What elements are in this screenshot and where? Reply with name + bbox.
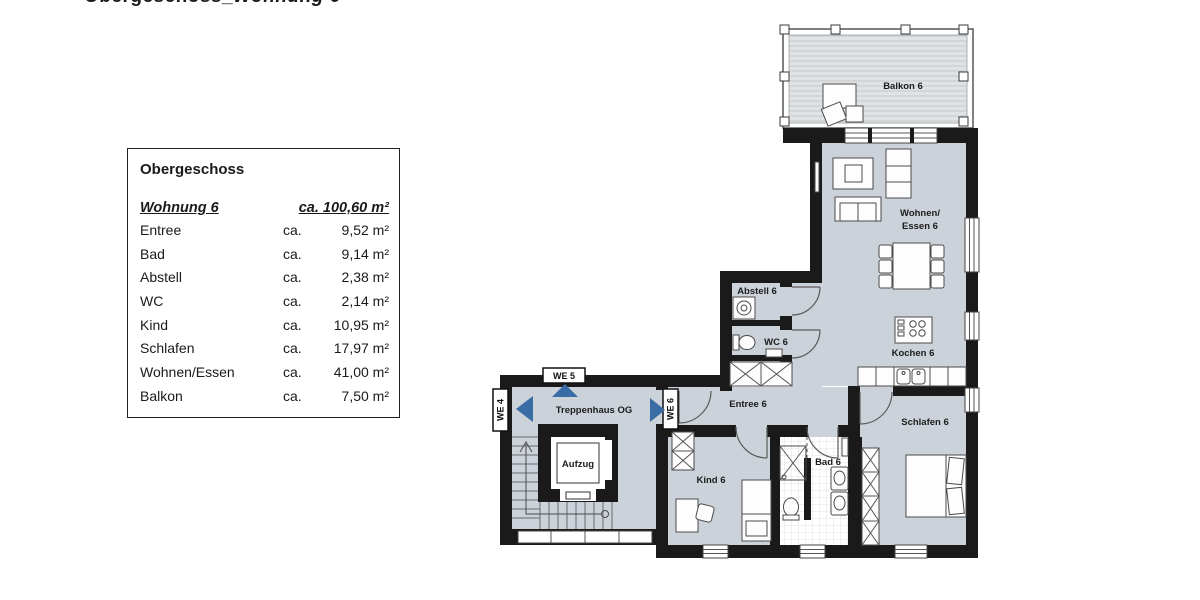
room-label-wc: WC 6 <box>764 337 788 348</box>
window <box>965 312 979 340</box>
desk-chair <box>695 503 714 522</box>
room-label-kind: Kind 6 <box>696 475 725 486</box>
shelf <box>886 149 911 198</box>
room-label-bad: Bad 6 <box>815 457 841 468</box>
window <box>703 545 728 558</box>
pillow <box>746 521 767 536</box>
room-label-essen: Essen 6 <box>902 221 938 232</box>
room-label-entree: Entree 6 <box>729 399 767 410</box>
wardrobe <box>672 432 694 470</box>
pillow <box>947 457 965 484</box>
wardrobe <box>862 448 879 545</box>
room-label-treppenhaus: Treppenhaus OG <box>556 405 633 416</box>
toilet-tank <box>783 515 799 520</box>
dining-table-set <box>879 243 944 289</box>
room-label-wohnen: Wohnen/ <box>900 208 940 219</box>
chair <box>931 245 944 258</box>
window-balcony-door <box>845 128 937 143</box>
wc-sink <box>766 349 782 357</box>
window <box>895 545 927 558</box>
chair <box>879 275 892 288</box>
toilet <box>784 498 799 516</box>
chair <box>931 260 944 273</box>
chair <box>931 275 944 288</box>
chair <box>879 245 892 258</box>
chair <box>879 260 892 273</box>
washing-machine <box>733 297 755 319</box>
we6-tag: WE 6 <box>666 398 676 420</box>
dining-table <box>893 243 930 289</box>
room-label-aufzug: Aufzug <box>562 459 594 470</box>
tv-sideboard <box>833 158 873 189</box>
hall-closet <box>730 362 792 386</box>
floor-plan-page: Obergeschoss_Wohnung 6 Obergeschoss Wohn… <box>0 0 1200 600</box>
balcony: Balkon 6 <box>780 25 973 128</box>
room-label-balkon: Balkon 6 <box>883 81 923 92</box>
window <box>965 388 979 412</box>
room-label-schlafen: Schlafen 6 <box>901 417 949 428</box>
room-label-abstell: Abstell 6 <box>737 286 777 297</box>
we5-tag: WE 5 <box>553 371 575 381</box>
radiator <box>842 438 848 456</box>
radiator <box>815 162 819 192</box>
window <box>800 545 825 558</box>
toilet-tank <box>733 335 739 350</box>
desk <box>676 499 698 532</box>
balcony-chair <box>846 106 863 122</box>
elevator: Aufzug <box>538 424 618 502</box>
floor-plan-drawing: Balkon 6 <box>0 0 1200 600</box>
pillow <box>947 487 965 514</box>
window <box>965 218 979 272</box>
shower-partition <box>804 458 811 520</box>
storage-door-gap <box>780 287 792 316</box>
toilet <box>739 336 755 350</box>
bedroom-door-gap <box>860 386 893 396</box>
we4-tag: WE 4 <box>496 399 506 421</box>
room-label-kochen: Kochen 6 <box>892 348 935 359</box>
balcony-deck <box>789 35 967 123</box>
